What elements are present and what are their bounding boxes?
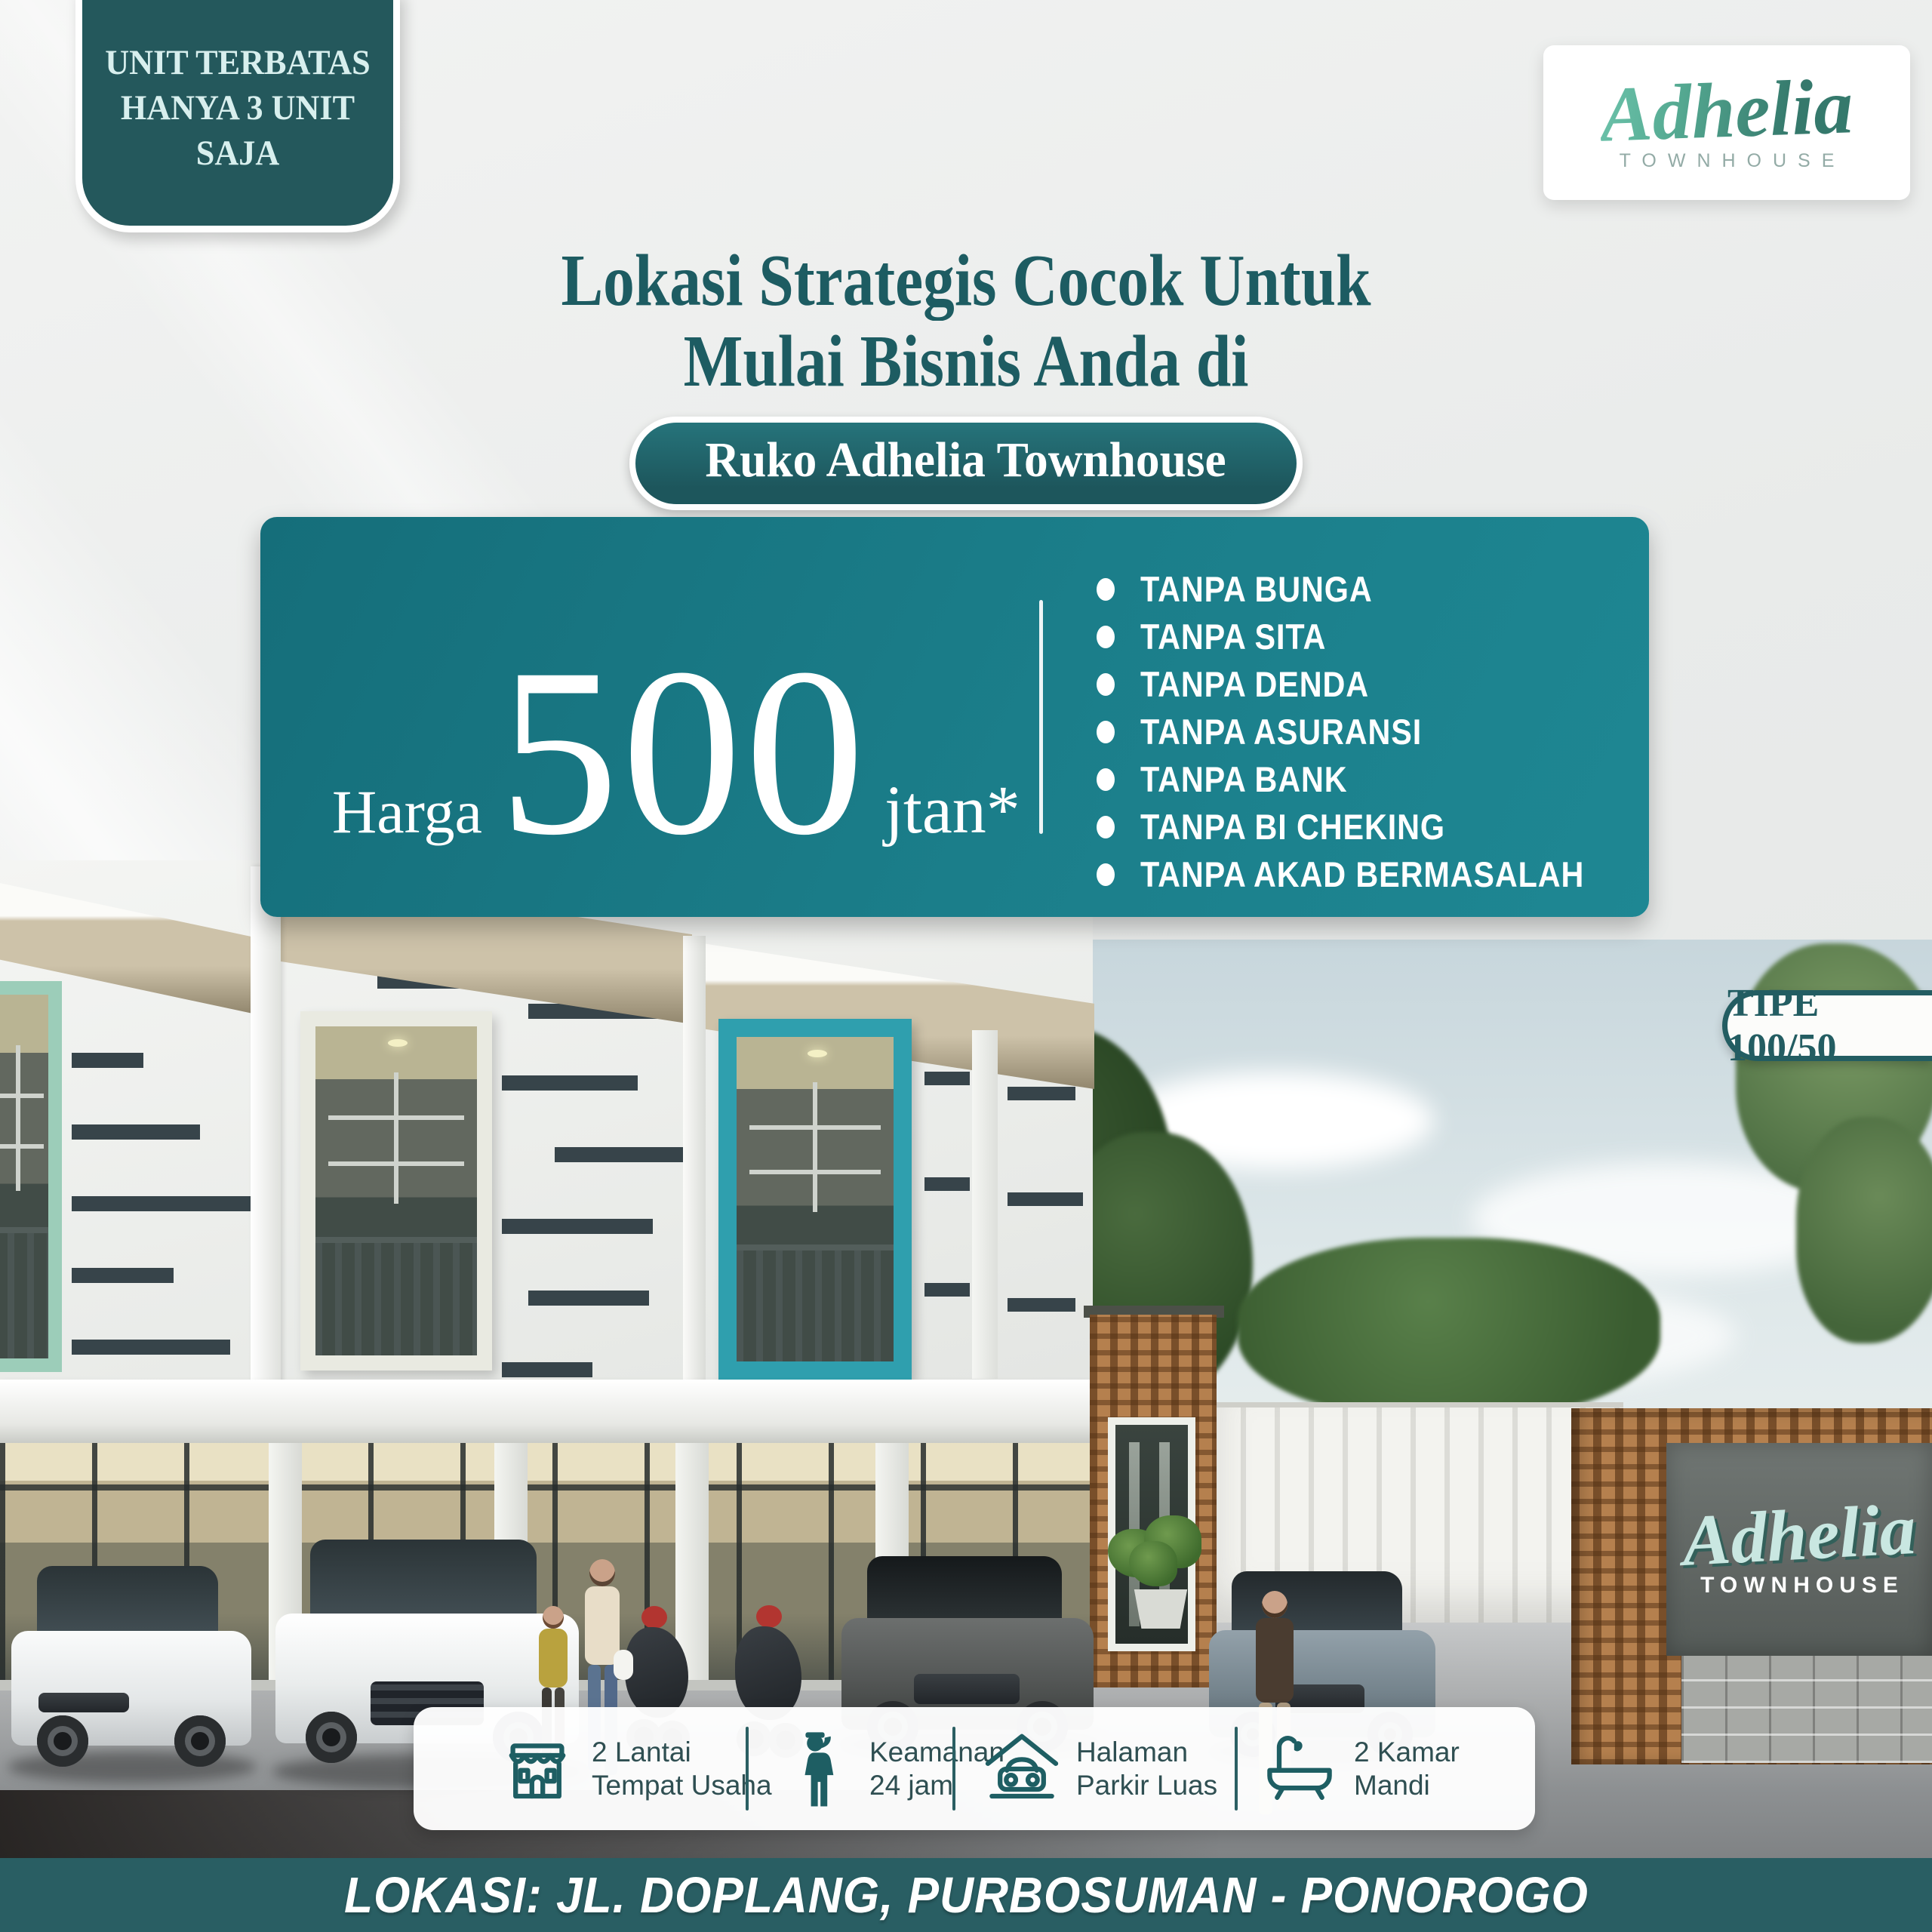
bullet-icon [1097,626,1115,648]
badge-line-1: UNIT TERBATAS [105,43,371,82]
benefit-item: TANPA SITA [1097,613,1645,660]
benefit-label: TANPA BANK [1140,758,1348,800]
storefront-icon [497,1728,578,1810]
window-bay-teal [718,1019,912,1380]
car-garage-icon [981,1728,1063,1810]
floor-fascia [0,1380,1093,1443]
headline: Lokasi Strategis Cocok Untuk Mulai Bisni… [0,240,1932,401]
gate-sign-panel: Adhelia TOWNHOUSE [1666,1443,1932,1656]
bathtub-icon [1259,1728,1340,1810]
benefit-item: TANPA ASURANSI [1097,708,1645,755]
price-suffix: jtan* [884,773,1020,848]
feature-label: Halaman Parkir Luas [1076,1736,1217,1802]
brand-logo-name: Adhelia [1599,69,1854,153]
brand-logo-card: Adhelia TOWNHOUSE [1543,45,1910,200]
project-name-pill-wrap: Ruko Adhelia Townhouse [0,417,1932,510]
headline-line-1: Lokasi Strategis Cocok Untuk [135,240,1797,321]
location-footer-bar: LOKASI: JL. DOPLANG, PURBOSUMAN - PONORO… [0,1858,1932,1932]
feature-divider [1235,1727,1238,1810]
feature-shop: 2 Lantai Tempat Usaha [497,1707,772,1830]
bullet-icon [1097,816,1115,838]
project-name-label: Ruko Adhelia Townhouse [706,432,1226,489]
gate-block-base [1681,1656,1932,1763]
limited-units-badge: UNIT TERBATAS HANYA 3 UNIT SAJA [75,0,400,232]
badge-line-2: HANYA 3 UNIT SAJA [121,88,355,173]
headline-line-2: Mulai Bisnis Anda di [135,321,1797,401]
security-guard-icon [774,1728,856,1810]
window-bay-mint [0,981,62,1372]
feature-parking: Halaman Parkir Luas [981,1707,1217,1830]
feature-label: 2 Kamar Mandi [1354,1736,1460,1802]
bullet-icon [1097,863,1115,886]
benefit-label: TANPA SITA [1140,616,1326,657]
entrance-tower [1090,1315,1217,1687]
plant [1108,1515,1214,1629]
features-band: 2 Lantai Tempat Usaha Keamanan 24 jam [414,1707,1535,1830]
benefit-label: TANPA ASURANSI [1140,711,1422,752]
offer-divider [1039,600,1043,834]
window-bay-cream [300,1011,492,1371]
facade-end-trim [972,1030,998,1379]
benefit-label: TANPA DENDA [1140,663,1369,705]
bullet-icon [1097,721,1115,743]
facade-pilaster [251,866,281,1395]
feature-label: 2 Lantai Tempat Usaha [592,1736,772,1802]
benefit-item: TANPA BI CHEKING [1097,803,1645,851]
price-row: Harga 500 jtan* [332,614,1020,890]
price-prefix: Harga [332,777,482,846]
feature-divider [952,1727,955,1810]
location-text: LOKASI: JL. DOPLANG, PURBOSUMAN - PONORO… [344,1866,1589,1924]
price-offer-card: Harga 500 jtan* TANPA BUNGA TANPA SITA T… [260,517,1649,917]
type-badge-label: TIPE 100/50 [1727,981,1932,1070]
benefit-item: TANPA AKAD BERMASALAH [1097,851,1645,898]
flyer-poster: Adhelia TOWNHOUSE [0,0,1932,1932]
white-mpv-car [11,1566,251,1771]
bullet-icon [1097,578,1115,601]
facade-pilaster [683,936,706,1396]
tree-line [1238,1238,1660,1419]
benefit-item: TANPA DENDA [1097,660,1645,708]
feature-security: Keamanan 24 jam [774,1707,1004,1830]
benefit-label: TANPA BI CHEKING [1140,806,1445,848]
type-badge: TIPE 100/50 [1722,990,1932,1061]
tree [1796,1117,1932,1343]
price-amount: 500 [499,619,868,884]
feature-bathroom: 2 Kamar Mandi [1259,1707,1460,1830]
benefit-item: TANPA BANK [1097,755,1645,803]
benefit-label: TANPA BUNGA [1140,568,1373,610]
feature-divider [746,1727,749,1810]
benefit-item: TANPA BUNGA [1097,565,1645,613]
gate-sign-name: Adhelia [1681,1494,1918,1576]
bullet-icon [1097,673,1115,696]
benefit-label: TANPA AKAD BERMASALAH [1140,854,1584,895]
benefits-list: TANPA BUNGA TANPA SITA TANPA DENDA TANPA… [1097,565,1645,898]
bullet-icon [1097,768,1115,791]
project-name-pill: Ruko Adhelia Townhouse [629,417,1302,510]
